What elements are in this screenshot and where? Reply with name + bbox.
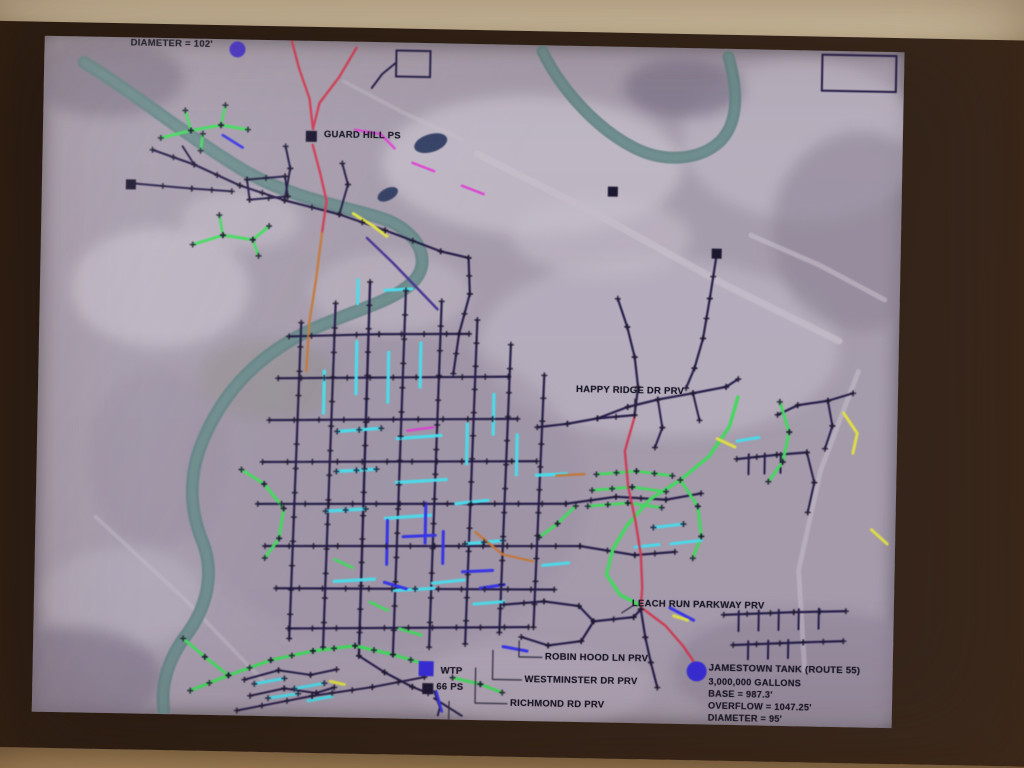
tank-dot bbox=[229, 41, 245, 57]
map-label-richmond-prv: RICHMOND RD PRV bbox=[510, 698, 605, 711]
facility-square-marker bbox=[608, 187, 618, 197]
map-label-guard-hill-ps: GUARD HILL PS bbox=[324, 129, 401, 141]
tank-info-overflow: OVERFLOW = 1047.25' bbox=[708, 701, 812, 713]
facility-square-marker bbox=[422, 683, 433, 694]
facility-square-marker bbox=[126, 179, 136, 189]
tank-info-base: BASE = 987.3' bbox=[708, 689, 773, 700]
map-label-wtp: WTP bbox=[441, 665, 463, 676]
monitor-bezel: DIAMETER = 102' GUARD HILL PS HAPPY RIDG… bbox=[0, 20, 1024, 768]
tank-info-diameter: DIAMETER = 95' bbox=[708, 713, 783, 724]
map-screen: DIAMETER = 102' GUARD HILL PS HAPPY RIDG… bbox=[32, 36, 905, 728]
facility-outline bbox=[396, 50, 430, 77]
map-label-happy-ridge-prv: HAPPY RIDGE DR PRV bbox=[576, 384, 684, 397]
map-label-diameter-note: DIAMETER = 102' bbox=[131, 37, 213, 50]
map-label-66-ps: 66 PS bbox=[436, 681, 463, 693]
facility-square-marker bbox=[419, 661, 434, 676]
facility-square-marker bbox=[306, 131, 317, 142]
tank-info-gallons: 3,000,000 GALLONS bbox=[708, 677, 801, 689]
water-system-map bbox=[32, 36, 905, 728]
map-label-jamestown-ps-prv: JAMESTOWN PS/PRV bbox=[489, 719, 592, 728]
terrain-layer bbox=[32, 36, 905, 728]
facility-square-marker bbox=[712, 249, 722, 259]
map-label-robin-hood-prv: ROBIN HOOD LN PRV bbox=[545, 651, 649, 664]
map-label-westminster-prv: WESTMINSTER DR PRV bbox=[524, 674, 637, 687]
